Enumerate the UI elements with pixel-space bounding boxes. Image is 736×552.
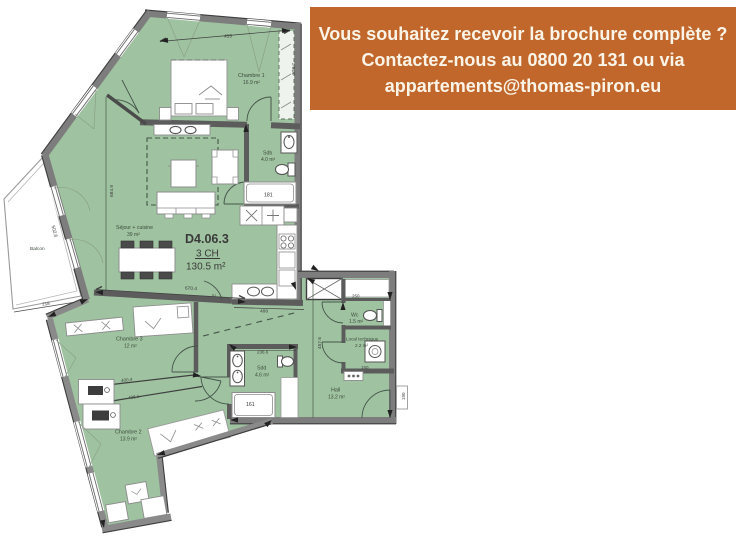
svg-text:Wc: Wc [351,313,359,319]
svg-text:3 CH: 3 CH [196,249,219,260]
svg-text:488: 488 [260,309,268,315]
svg-text:1.5 m²: 1.5 m² [349,319,364,325]
svg-text:D4.06.3: D4.06.3 [185,232,229,246]
svg-text:161: 161 [246,402,255,408]
svg-text:4.0 m²: 4.0 m² [261,157,276,163]
svg-text:Sdd: Sdd [257,366,266,372]
svg-text:Séjour + cuisine: Séjour + cuisine [116,225,153,231]
svg-text:457.6: 457.6 [317,337,323,349]
svg-text:684.9: 684.9 [109,185,115,197]
svg-text:Sdb: Sdb [263,151,272,157]
svg-text:Balcon: Balcon [30,246,45,252]
svg-text:670.4: 670.4 [185,285,198,292]
svg-text:13.2 m²: 13.2 m² [328,395,345,401]
svg-text:130.5 m²: 130.5 m² [186,262,226,273]
svg-text:16.9 m²: 16.9 m² [243,80,260,86]
svg-text:250: 250 [352,294,360,299]
svg-text:39 m²: 39 m² [127,232,140,238]
svg-text:308.7: 308.7 [291,63,297,75]
svg-text:4.6 m²: 4.6 m² [255,373,270,379]
svg-text:181: 181 [264,193,273,199]
svg-text:Chambre 2: Chambre 2 [115,430,142,436]
svg-text:236.6: 236.6 [257,350,269,355]
svg-text:Hall: Hall [331,388,340,394]
svg-text:13.9 m²: 13.9 m² [120,437,137,443]
svg-text:Local technique: Local technique [346,337,379,342]
svg-text:453: 453 [224,33,233,40]
svg-text:150: 150 [361,365,369,370]
svg-text:51: 51 [212,294,217,298]
svg-text:190: 190 [401,392,406,400]
svg-text:2.2 m²: 2.2 m² [355,343,368,348]
svg-text:12 m²: 12 m² [124,344,137,350]
svg-text:Chambre 3: Chambre 3 [116,337,143,343]
svg-text:Chambre 1: Chambre 1 [238,73,265,79]
svg-text:218: 218 [42,301,51,307]
